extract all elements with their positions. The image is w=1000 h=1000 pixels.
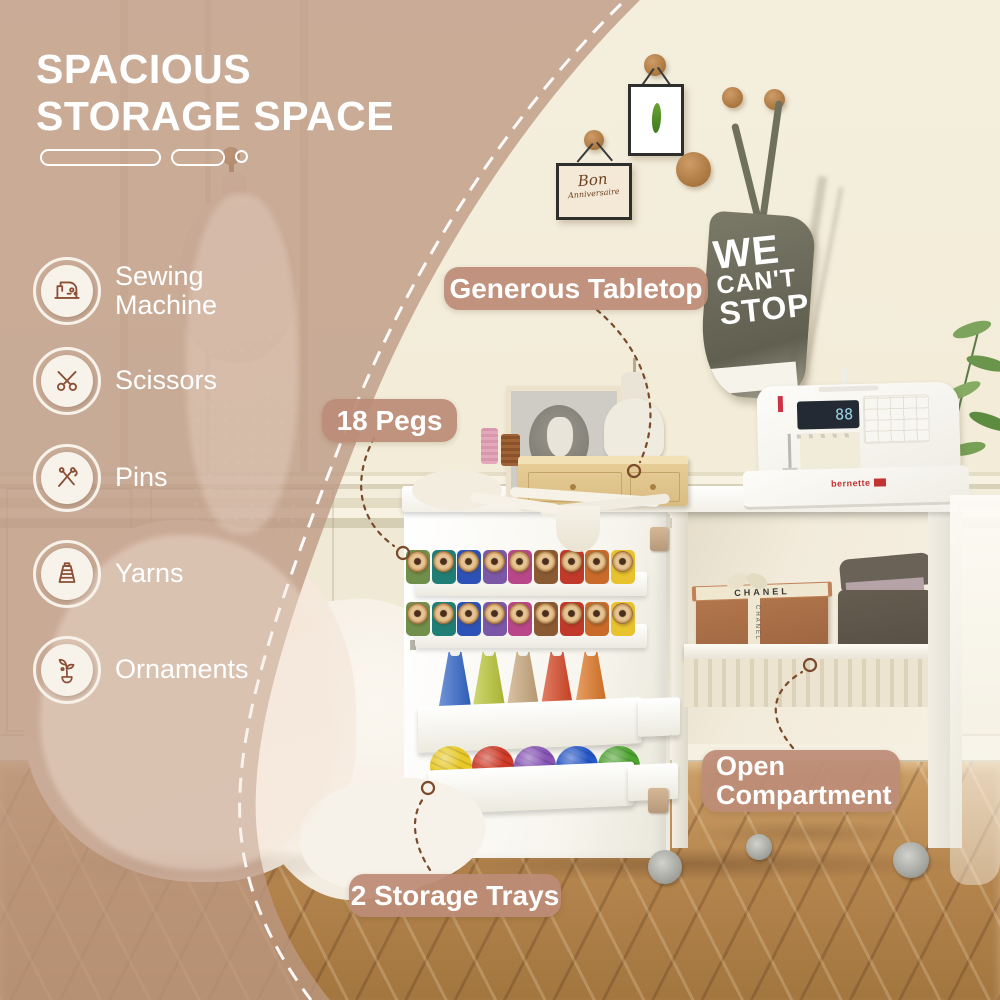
pins-icon-bg	[41, 452, 93, 504]
decorative-pill	[171, 149, 225, 166]
feature-label: Yarns	[115, 559, 184, 588]
callout-open-compartment: Open Compartment	[702, 750, 900, 812]
connector-trays	[415, 796, 430, 870]
callout-generous-tabletop: Generous Tabletop	[444, 267, 708, 310]
yarns-icon	[33, 540, 101, 608]
connector-pegs	[361, 438, 394, 546]
connector-tabletop	[597, 310, 650, 462]
feature-scissors: Scissors	[33, 347, 217, 415]
feature-label: Ornaments	[115, 655, 249, 684]
sewing-machine-icon-bg	[41, 265, 93, 317]
connector-ring-tabletop	[628, 465, 640, 477]
scissors-icon	[33, 347, 101, 415]
sewing-machine-icon	[33, 257, 101, 325]
decorative-ring	[235, 150, 248, 163]
feature-yarns: Yarns	[33, 540, 184, 608]
headline: SPACIOUS STORAGE SPACE	[36, 46, 394, 140]
feature-pins: Pins	[33, 444, 168, 512]
callout-2-storage-trays: 2 Storage Trays	[349, 874, 561, 917]
headline-line2: STORAGE SPACE	[36, 93, 394, 140]
feature-ornaments: Ornaments	[33, 636, 249, 704]
ornaments-icon-bg	[41, 644, 93, 696]
connector-ring-trays	[422, 782, 434, 794]
scissors-icon-bg	[41, 355, 93, 407]
connector-ring-compartment	[804, 659, 816, 671]
pins-icon	[33, 444, 101, 512]
callout-18-pegs: 18 Pegs	[322, 399, 457, 442]
yarns-icon-bg	[41, 548, 93, 600]
headline-line1: SPACIOUS	[36, 46, 394, 93]
callout-open-line1: Open	[716, 752, 785, 781]
feature-label: Sewing Machine	[115, 262, 235, 320]
product-marketing-image: Bon Anniversaire WE CAN'T STOP	[0, 0, 1000, 1000]
connector-compartment	[776, 672, 802, 748]
decorative-pill	[40, 149, 161, 166]
ornaments-icon	[33, 636, 101, 704]
callout-open-line2: Compartment	[716, 781, 892, 810]
feature-label: Scissors	[115, 366, 217, 395]
feature-label: Pins	[115, 463, 168, 492]
feature-sewing-machine: Sewing Machine	[33, 257, 235, 325]
connector-ring-pegs	[397, 547, 409, 559]
